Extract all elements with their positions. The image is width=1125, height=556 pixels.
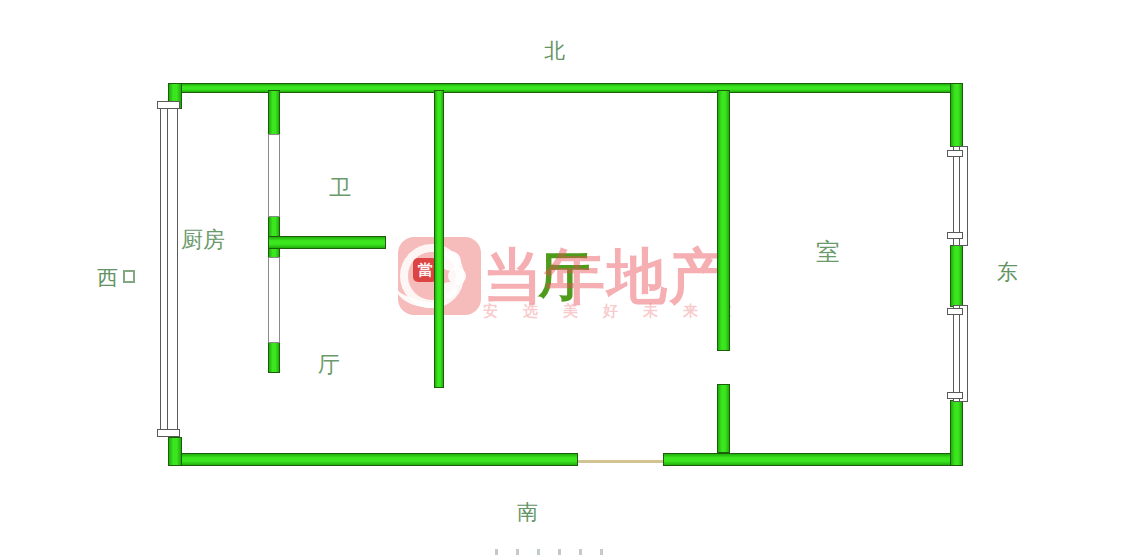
kitchen-door-gap-lower [268,257,280,343]
wall-bedroom-upper [717,90,730,351]
unknown-char-box-icon [123,270,135,283]
window-east-lower-top-tick [947,308,963,315]
window-east-lower-icon [953,305,968,402]
wall-east-upper [950,83,963,147]
compass-south-label: 南 [517,502,538,523]
entrance-threshold-line [578,460,663,463]
hall-small-label: 厅 [318,354,340,376]
bathroom-label: 卫 [329,177,351,199]
window-west-top-tick [157,101,180,109]
compass-east-label: 东 [997,262,1018,283]
window-west-bottom-tick [157,429,180,437]
floor-plan: 北 南 西 东 厨房 卫 厅 室 厅 當 当年地产 安选美好未来 家 [0,0,1125,556]
window-east-upper-top-tick [947,150,963,157]
clipped-caption-marks [495,549,615,555]
watermark-slogan-text: 安选美好未来 [483,304,723,319]
compass-west-text: 西 [97,266,118,290]
wall-south-right [663,453,962,466]
wall-bathroom-south [268,236,386,249]
kitchen-door-gap [268,134,280,217]
watermark-brand-text: 当年地产 [483,246,731,306]
window-east-lower-bottom-tick [947,392,963,399]
compass-north-label: 北 [544,41,565,62]
wall-east-middle [950,245,963,307]
kitchen-label: 厨房 [181,229,225,251]
wall-kitchen-divider-upper [268,90,280,135]
wall-west-bottom-stub [168,437,182,466]
window-east-upper-bottom-tick [947,232,963,239]
wall-kitchen-divider-stub [268,342,280,373]
wall-hall-west [434,90,444,388]
wall-bedroom-lower [717,384,730,453]
wall-east-lower [950,400,963,466]
wall-north [168,83,962,93]
window-west-icon [160,105,178,437]
bedroom-label: 室 [816,240,840,264]
compass-west-label: 西 [97,268,135,289]
window-east-upper-icon [953,146,968,246]
wall-south-left [168,453,578,466]
